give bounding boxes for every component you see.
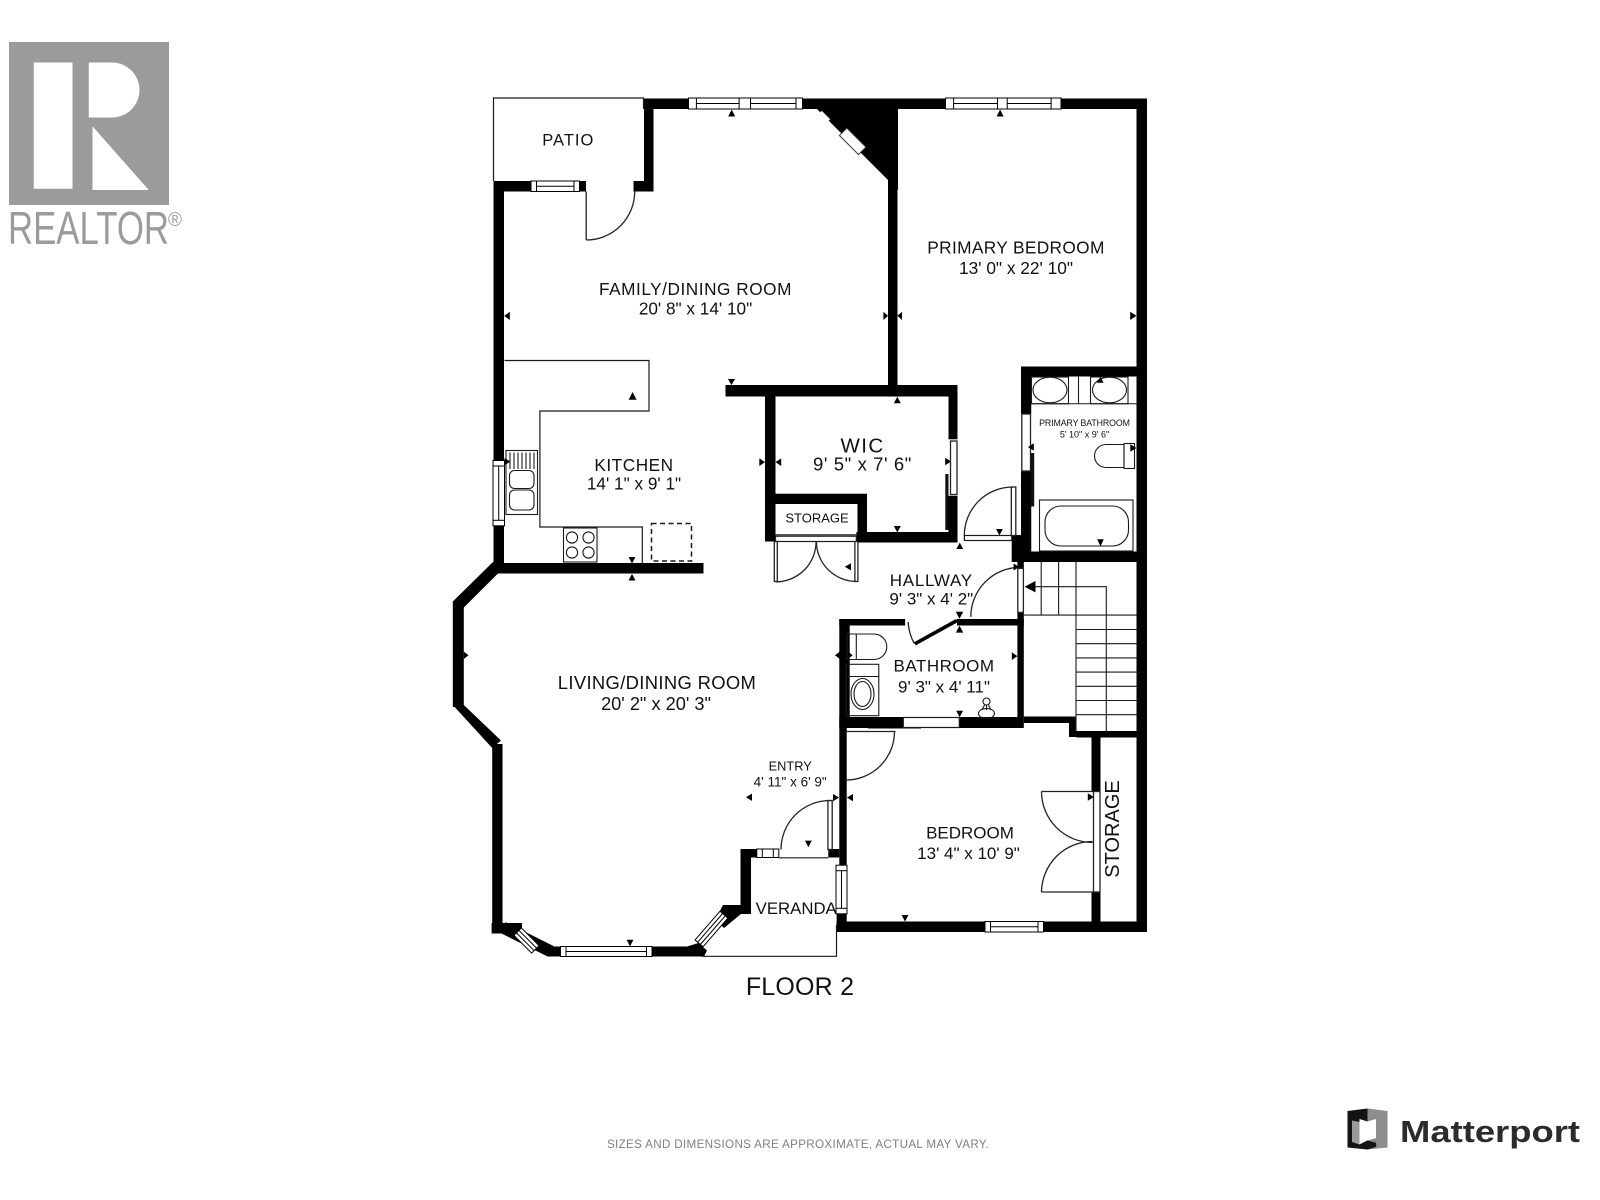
svg-text:®: ®: [168, 210, 182, 231]
svg-text:20' 2" x 20' 3": 20' 2" x 20' 3": [601, 694, 711, 714]
svg-text:4' 11" x 6' 9": 4' 11" x 6' 9": [754, 775, 827, 790]
svg-text:PRIMARY BATHROOM: PRIMARY BATHROOM: [1039, 418, 1130, 428]
svg-text:13' 0" x 22' 10": 13' 0" x 22' 10": [959, 258, 1073, 278]
svg-text:9' 3" x 4' 11": 9' 3" x 4' 11": [898, 678, 990, 697]
svg-text:BEDROOM: BEDROOM: [926, 824, 1014, 843]
svg-text:PATIO: PATIO: [542, 132, 594, 150]
svg-text:14' 1" x 9' 1": 14' 1" x 9' 1": [587, 474, 681, 494]
svg-text:ENTRY: ENTRY: [769, 759, 813, 774]
svg-text:9' 3" x 4' 2": 9' 3" x 4' 2": [889, 590, 973, 609]
svg-text:STORAGE: STORAGE: [1102, 780, 1124, 877]
svg-text:HALLWAY: HALLWAY: [890, 571, 973, 590]
svg-text:13' 4" x 10' 9": 13' 4" x 10' 9": [917, 844, 1020, 863]
svg-text:REALTOR: REALTOR: [8, 202, 169, 254]
svg-text:STORAGE: STORAGE: [785, 511, 849, 526]
svg-text:Matterport: Matterport: [1400, 1114, 1580, 1149]
svg-text:VERANDA: VERANDA: [756, 899, 838, 918]
svg-text:20' 8" x 14' 10": 20' 8" x 14' 10": [639, 299, 752, 319]
svg-text:KITCHEN: KITCHEN: [594, 455, 673, 475]
svg-text:LIVING/DINING ROOM: LIVING/DINING ROOM: [558, 672, 756, 693]
svg-text:BATHROOM: BATHROOM: [894, 657, 995, 676]
svg-text:9' 5" x 7' 6": 9' 5" x 7' 6": [813, 454, 912, 475]
svg-text:5' 10" x 9' 6": 5' 10" x 9' 6": [1060, 430, 1109, 440]
svg-text:PRIMARY BEDROOM: PRIMARY BEDROOM: [927, 238, 1104, 258]
svg-text:FLOOR 2: FLOOR 2: [746, 973, 854, 1001]
svg-text:SIZES AND DIMENSIONS ARE APPRO: SIZES AND DIMENSIONS ARE APPROXIMATE, AC…: [607, 1138, 989, 1151]
svg-text:FAMILY/DINING ROOM: FAMILY/DINING ROOM: [599, 279, 792, 299]
